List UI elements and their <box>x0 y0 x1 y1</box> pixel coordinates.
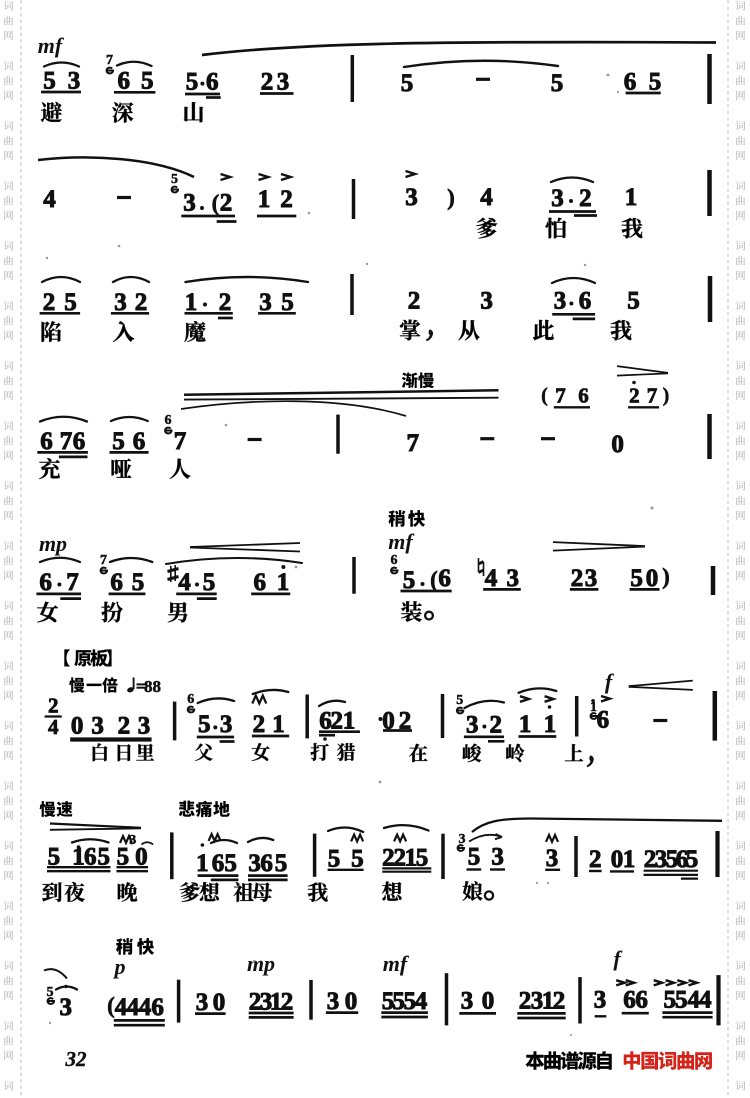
svg-text:3: 3 <box>196 989 209 1016</box>
svg-text:5: 5 <box>171 172 178 187</box>
svg-text:5: 5 <box>224 850 237 877</box>
svg-text:3: 3 <box>327 988 340 1015</box>
svg-text:6: 6 <box>579 288 592 315</box>
svg-text:6: 6 <box>253 569 266 596</box>
svg-text:3: 3 <box>554 288 567 315</box>
svg-text:5: 5 <box>649 69 662 96</box>
svg-text:7: 7 <box>66 569 79 596</box>
svg-text:6: 6 <box>133 428 146 455</box>
svg-text:): ) <box>447 185 455 210</box>
svg-text:5: 5 <box>112 428 125 455</box>
svg-text:5: 5 <box>328 846 341 873</box>
svg-text:(: ( <box>430 567 438 592</box>
svg-text:7: 7 <box>174 428 187 455</box>
svg-text:2: 2 <box>589 846 602 873</box>
svg-text:7: 7 <box>555 384 566 408</box>
svg-text:88: 88 <box>144 677 161 696</box>
svg-text:3: 3 <box>551 185 564 212</box>
svg-text:2: 2 <box>519 988 532 1015</box>
svg-text:4: 4 <box>485 565 498 592</box>
svg-text:): ) <box>663 385 670 407</box>
svg-text:7: 7 <box>106 53 113 68</box>
svg-text:2: 2 <box>579 185 592 212</box>
svg-text:(: ( <box>541 385 548 407</box>
svg-text:2: 2 <box>280 186 293 213</box>
svg-text:3: 3 <box>594 987 607 1014</box>
svg-text:0: 0 <box>646 565 659 592</box>
svg-text:4: 4 <box>415 988 428 1015</box>
svg-text:0: 0 <box>611 431 624 458</box>
svg-text:6: 6 <box>578 384 589 408</box>
svg-text:1: 1 <box>258 186 271 213</box>
svg-text:5: 5 <box>551 70 564 97</box>
svg-text:6: 6 <box>635 987 648 1014</box>
svg-text:2: 2 <box>48 694 59 718</box>
svg-text:3: 3 <box>491 844 504 871</box>
svg-text:0: 0 <box>611 846 624 873</box>
svg-text:4: 4 <box>178 569 191 596</box>
svg-text:6: 6 <box>438 565 451 592</box>
svg-text:1: 1 <box>272 711 285 738</box>
svg-text:6: 6 <box>73 428 86 455</box>
svg-text:(: ( <box>212 191 220 216</box>
svg-text:6: 6 <box>165 413 172 428</box>
svg-text:1: 1 <box>196 850 209 877</box>
svg-text:4: 4 <box>480 184 493 211</box>
svg-text:6: 6 <box>110 569 123 596</box>
svg-text:6: 6 <box>623 987 636 1014</box>
svg-text:5: 5 <box>186 69 199 96</box>
svg-text:5: 5 <box>198 711 211 738</box>
svg-text:3: 3 <box>480 288 493 315</box>
svg-text:6: 6 <box>212 850 225 877</box>
svg-text:p: p <box>113 954 126 979</box>
svg-text:6: 6 <box>206 69 219 96</box>
svg-text:1: 1 <box>544 711 557 738</box>
svg-text:3: 3 <box>138 713 151 740</box>
svg-text:6: 6 <box>39 569 52 596</box>
svg-text:5: 5 <box>675 987 688 1014</box>
svg-text:6: 6 <box>117 68 130 95</box>
svg-text:2: 2 <box>571 565 584 592</box>
svg-text:2: 2 <box>553 988 566 1015</box>
svg-text:0: 0 <box>345 988 358 1015</box>
svg-text:3: 3 <box>68 68 81 95</box>
svg-text:2: 2 <box>408 288 421 315</box>
svg-text:3: 3 <box>405 184 418 211</box>
svg-text:): ) <box>662 564 670 589</box>
svg-text:1: 1 <box>519 711 532 738</box>
svg-text:mf: mf <box>383 951 410 976</box>
svg-text:32: 32 <box>65 1047 88 1071</box>
svg-text:0: 0 <box>71 713 84 740</box>
svg-text:5: 5 <box>627 288 640 315</box>
svg-text:5: 5 <box>141 68 154 95</box>
svg-text:mp: mp <box>247 951 275 976</box>
svg-text:1: 1 <box>623 846 636 873</box>
svg-text:5: 5 <box>203 569 216 596</box>
svg-text:mf: mf <box>388 529 415 554</box>
svg-text:3: 3 <box>546 845 559 872</box>
svg-text:5: 5 <box>686 846 699 873</box>
svg-text:mf: mf <box>38 33 65 58</box>
svg-text:3: 3 <box>461 988 474 1015</box>
svg-text:3: 3 <box>466 712 479 739</box>
svg-text:2: 2 <box>253 711 266 738</box>
svg-text:7: 7 <box>647 384 658 408</box>
svg-text:5: 5 <box>351 846 364 873</box>
svg-text:3: 3 <box>585 565 598 592</box>
svg-text:5: 5 <box>43 68 56 95</box>
svg-text:2: 2 <box>261 69 274 96</box>
svg-text:6: 6 <box>597 707 610 734</box>
svg-text:6: 6 <box>40 428 53 455</box>
svg-text:2: 2 <box>220 190 233 217</box>
svg-text:2: 2 <box>629 384 640 408</box>
svg-text:4: 4 <box>43 186 56 213</box>
svg-text:4: 4 <box>139 994 152 1021</box>
svg-text:6: 6 <box>151 994 164 1021</box>
svg-text:7: 7 <box>406 430 419 457</box>
svg-text:5: 5 <box>132 569 145 596</box>
svg-text:4: 4 <box>699 987 712 1014</box>
svg-text:5: 5 <box>630 565 643 592</box>
svg-text:4: 4 <box>48 715 59 739</box>
svg-text:6: 6 <box>260 850 273 877</box>
svg-text:2: 2 <box>118 713 131 740</box>
svg-text:3: 3 <box>60 994 73 1021</box>
svg-text:5: 5 <box>468 844 481 871</box>
svg-text:5: 5 <box>401 70 414 97</box>
svg-text:(: ( <box>107 993 115 1018</box>
svg-text:6: 6 <box>187 692 194 707</box>
svg-text:7: 7 <box>100 553 107 568</box>
svg-text:mp: mp <box>39 531 67 556</box>
svg-text:6: 6 <box>391 553 398 568</box>
svg-text:3: 3 <box>91 713 104 740</box>
svg-text:3: 3 <box>220 711 233 738</box>
svg-text:6: 6 <box>624 69 637 96</box>
svg-text:2: 2 <box>490 712 503 739</box>
svg-text:3: 3 <box>277 69 290 96</box>
svg-text:0: 0 <box>482 988 495 1015</box>
svg-text:3: 3 <box>183 190 196 217</box>
svg-text:3: 3 <box>248 850 261 877</box>
svg-text:5: 5 <box>456 693 463 708</box>
svg-text:7: 7 <box>60 428 73 455</box>
svg-text:3: 3 <box>507 565 520 592</box>
svg-text:0: 0 <box>213 989 226 1016</box>
svg-text:1: 1 <box>625 184 638 211</box>
svg-text:5: 5 <box>275 850 288 877</box>
svg-text:1: 1 <box>277 569 290 596</box>
svg-text:2: 2 <box>281 989 294 1016</box>
